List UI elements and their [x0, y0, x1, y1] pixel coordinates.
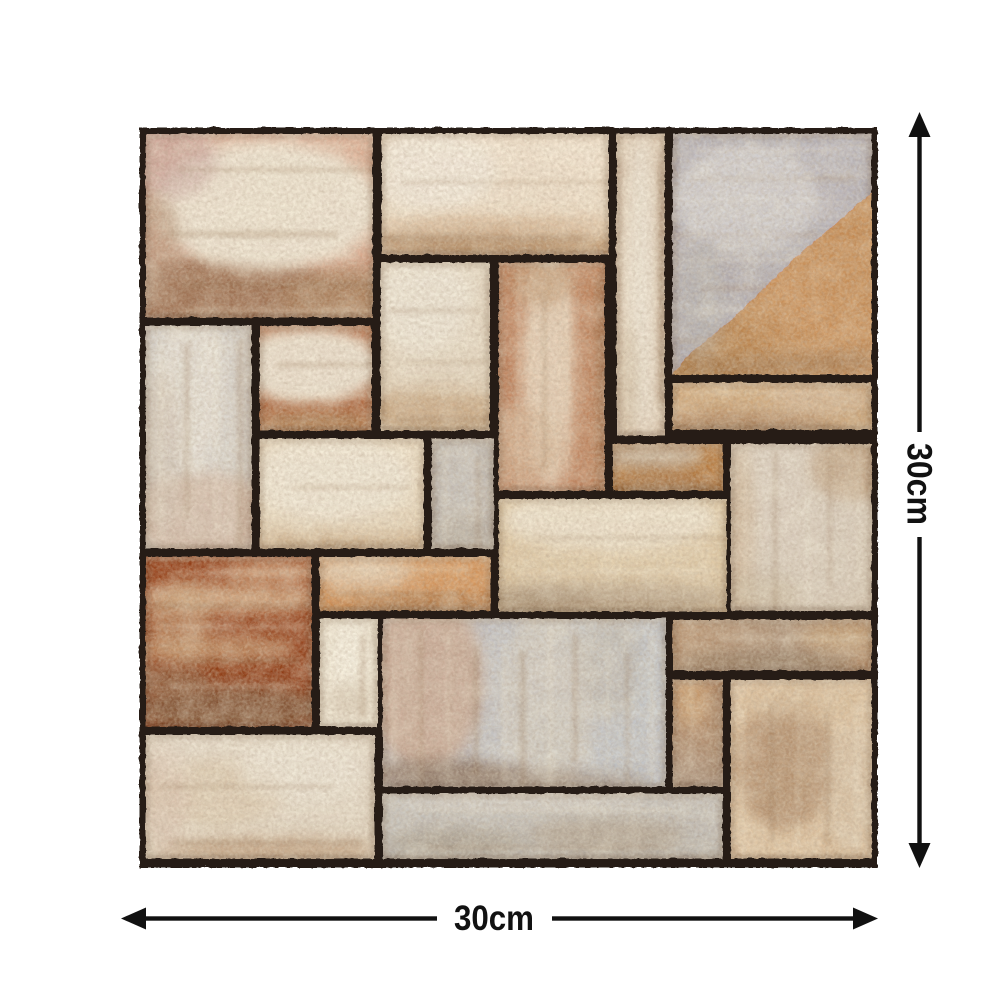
svg-text:30cm: 30cm: [900, 443, 939, 525]
svg-text:30cm: 30cm: [454, 899, 534, 938]
